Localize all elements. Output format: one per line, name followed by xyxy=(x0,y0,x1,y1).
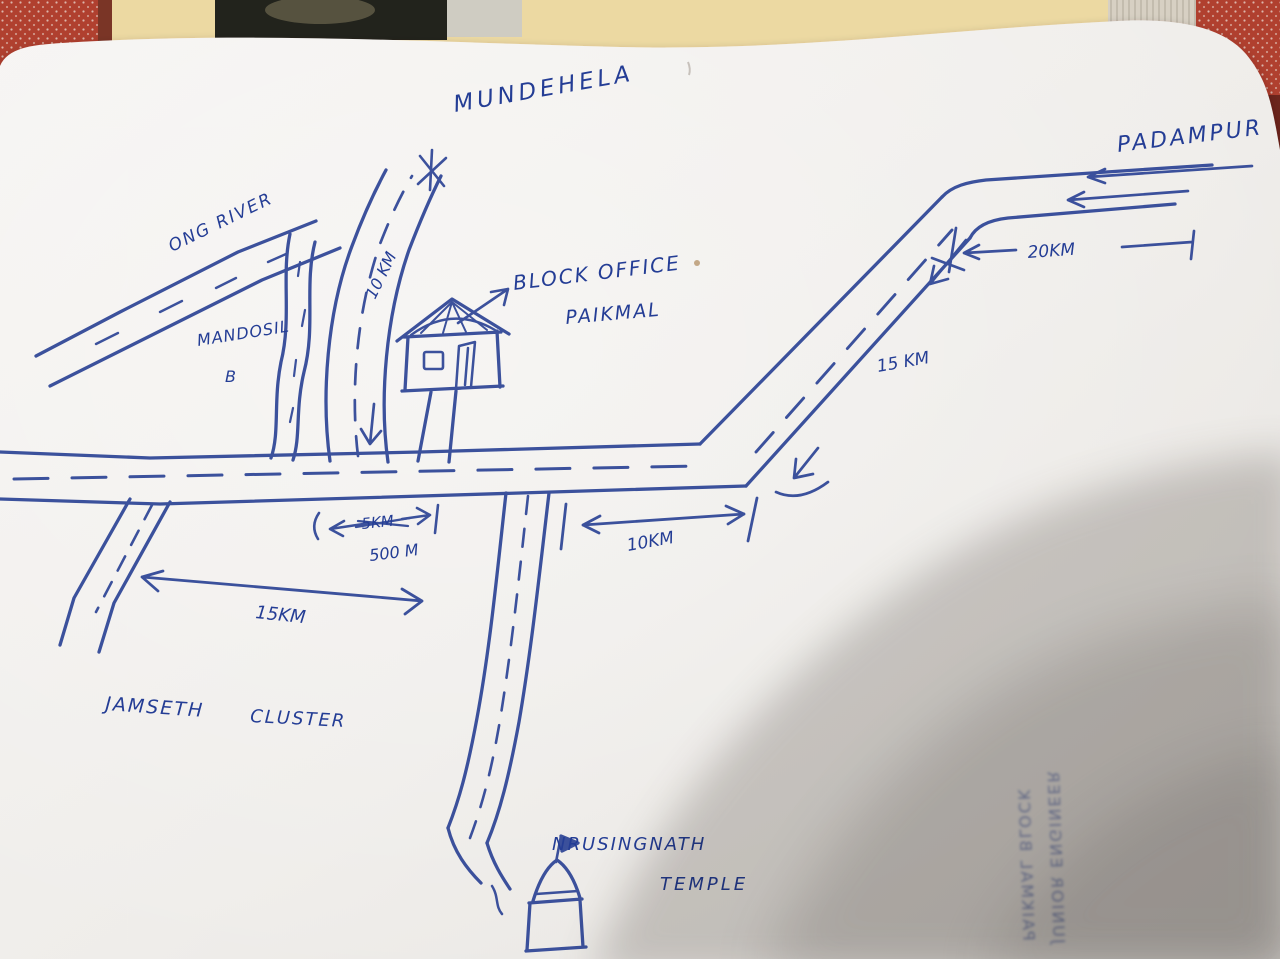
map-sketch-canvas: MUNDEHELA PADAMPUR ONG RIVER MANDOSIL B … xyxy=(0,0,1280,959)
photo-of-hand-drawn-map: MUNDEHELA PADAMPUR ONG RIVER MANDOSIL B … xyxy=(0,0,1280,959)
distance-20km: 20KM xyxy=(1027,240,1076,263)
notebook-label xyxy=(447,0,522,37)
distance-5km-struck: 5KM xyxy=(361,512,395,533)
label-mandosil-b: B xyxy=(225,367,236,386)
paper-stain xyxy=(694,260,700,266)
